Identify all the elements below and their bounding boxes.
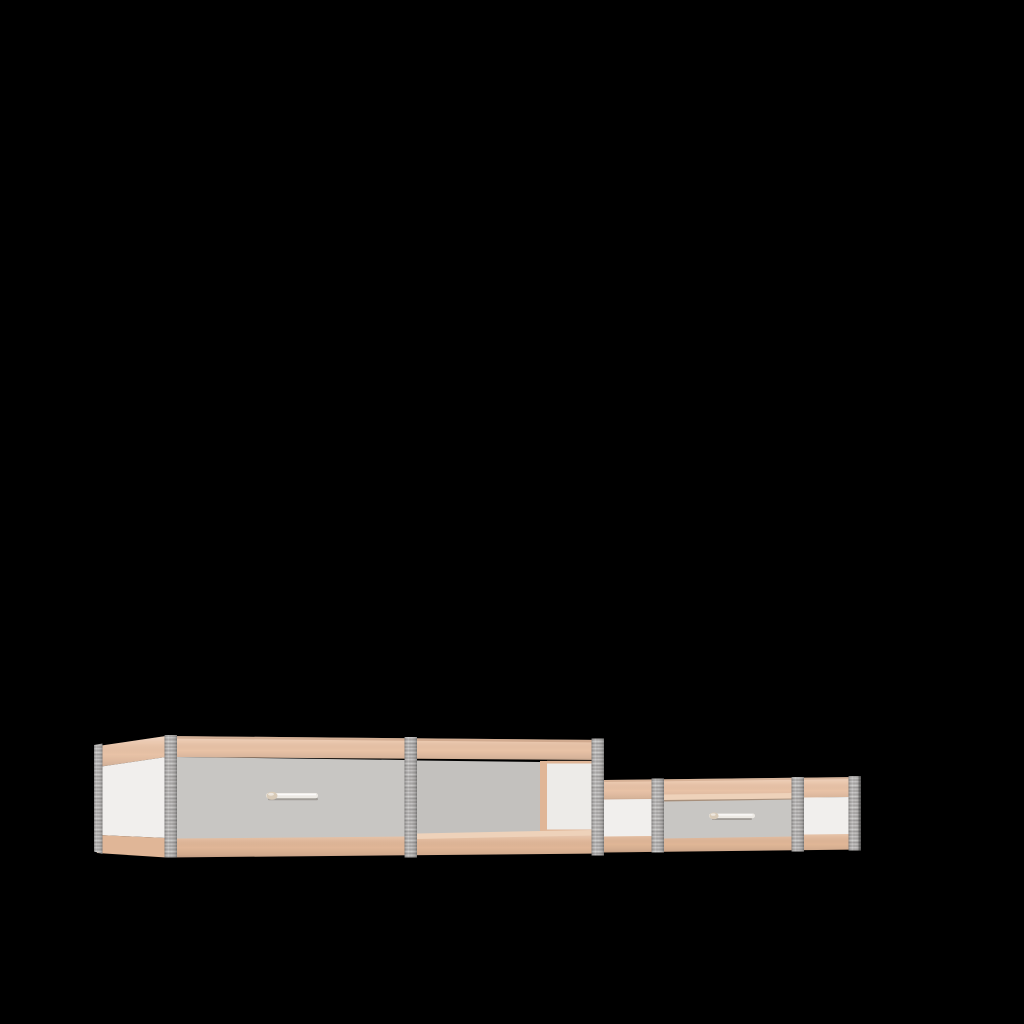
handle-shadow [712,818,752,820]
low-white-panel-right [804,797,850,835]
metal-post-1 [165,735,178,858]
side-front-edge-post-shade [94,744,103,855]
metal-post-2 [405,737,418,858]
metal-post-6 [849,776,862,851]
black-canvas: { "scene": { "background_color": "#00000… [0,0,1024,1024]
low-unit [604,777,861,853]
handle-cap-highlight [268,793,274,796]
left-side-face [94,736,166,858]
open-compartment [417,761,592,840]
metal-post-3 [592,739,605,856]
small-drawer [664,793,793,839]
compartment-partition-edge [540,761,547,834]
large-drawer-handle [266,792,318,800]
sideboard-render [94,735,861,858]
small-drawer-handle [709,813,755,821]
metal-post-4 [652,779,665,853]
metal-post-5 [792,777,805,852]
handle-cap-highlight [711,813,716,815]
side-white-panel [98,757,166,838]
compartment-back-panel [417,761,540,836]
side-bottom-rail [97,835,166,858]
render-viewport [0,0,1024,1024]
compartment-white-panel [547,764,592,831]
low-white-panel-left [604,799,653,837]
end-post-edge-shadow [859,776,862,851]
large-drawer [177,757,405,839]
